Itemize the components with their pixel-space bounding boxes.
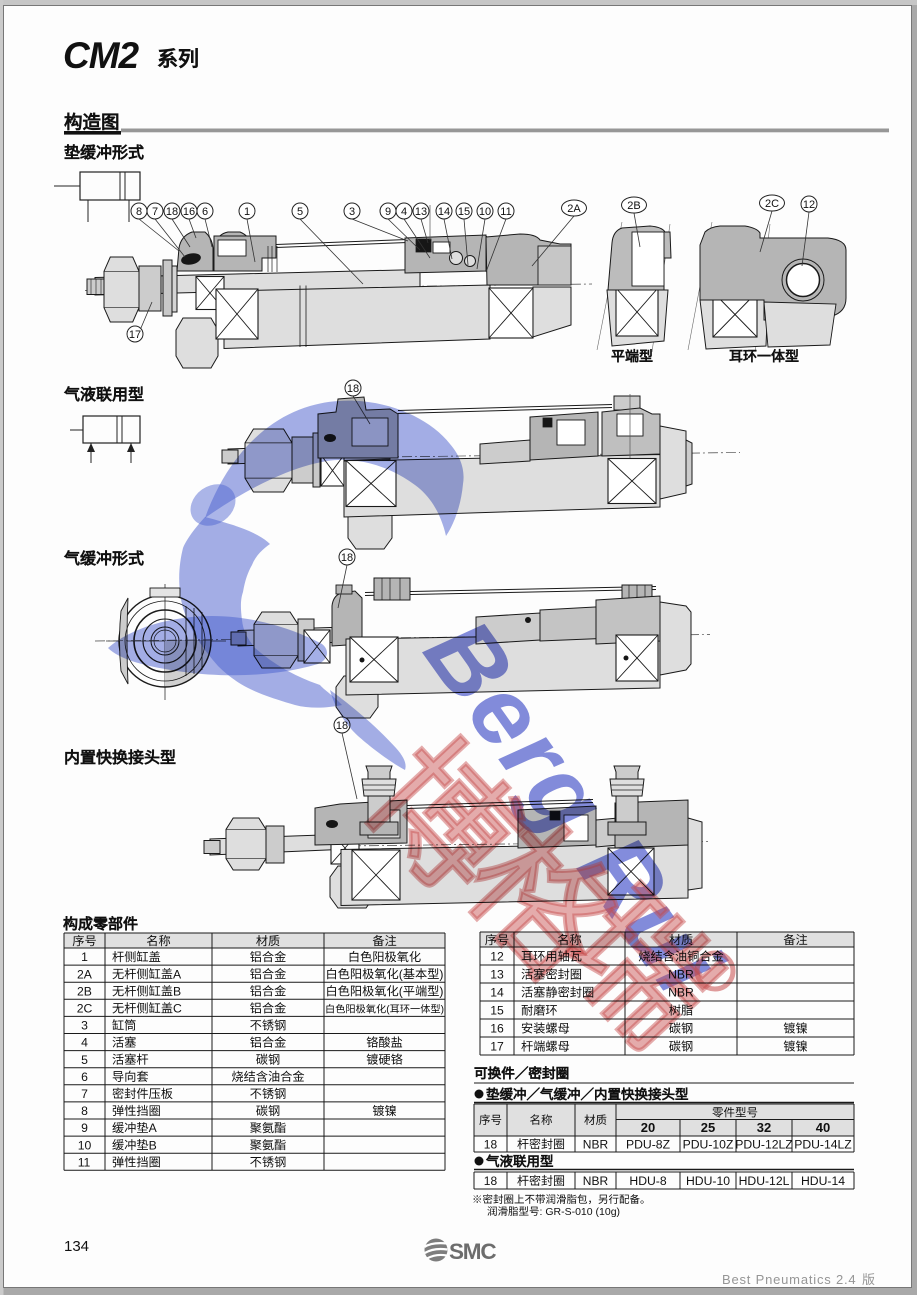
svg-text:4: 4 [401, 206, 407, 218]
svg-text:PDU-14LZ: PDU-14LZ [794, 1137, 852, 1151]
svg-text:25: 25 [701, 1120, 715, 1135]
svg-text:18: 18 [484, 1174, 498, 1188]
svg-text:PDU-10Z: PDU-10Z [683, 1137, 734, 1151]
svg-text:14: 14 [438, 206, 450, 218]
svg-text:2B: 2B [77, 984, 92, 998]
svg-text:A: A [149, 1121, 158, 1135]
svg-text:9: 9 [385, 206, 391, 218]
svg-text:13: 13 [415, 206, 427, 218]
svg-text:134: 134 [64, 1238, 89, 1255]
svg-text:14: 14 [490, 986, 504, 1000]
svg-text:7: 7 [152, 206, 158, 218]
svg-text:PDU-12LZ: PDU-12LZ [735, 1137, 793, 1151]
svg-text:): ) [439, 984, 443, 998]
svg-text:32: 32 [757, 1120, 771, 1135]
svg-text:17: 17 [490, 1040, 504, 1054]
svg-text:18: 18 [347, 383, 359, 395]
svg-text:PDU-8Z: PDU-8Z [626, 1137, 671, 1151]
svg-text:15: 15 [458, 206, 470, 218]
svg-text:(: ( [386, 1005, 390, 1016]
svg-text:2A: 2A [77, 967, 93, 981]
svg-text:2C: 2C [765, 198, 779, 210]
svg-text:12: 12 [490, 950, 504, 964]
svg-text:18: 18 [341, 552, 353, 564]
svg-text:7: 7 [81, 1087, 88, 1101]
svg-text:12: 12 [803, 199, 815, 211]
svg-text:1: 1 [244, 206, 250, 218]
svg-text:4: 4 [81, 1036, 88, 1050]
svg-text:16: 16 [490, 1022, 504, 1036]
svg-text:2C: 2C [77, 1002, 93, 1016]
svg-text:): ) [439, 967, 443, 981]
svg-text:6: 6 [202, 206, 208, 218]
svg-text:3: 3 [349, 206, 355, 218]
svg-text:Best Pneumatics 2.4: Best Pneumatics 2.4 [722, 1272, 856, 1287]
svg-text:HDU-8: HDU-8 [629, 1174, 666, 1188]
svg-text:10: 10 [78, 1138, 92, 1152]
svg-text:18: 18 [166, 206, 178, 218]
svg-text:8: 8 [136, 206, 142, 218]
svg-text:HDU-14: HDU-14 [801, 1174, 845, 1188]
svg-text:9: 9 [81, 1121, 88, 1135]
svg-text:18: 18 [484, 1137, 498, 1151]
svg-text:16: 16 [183, 206, 195, 218]
svg-text:40: 40 [816, 1120, 830, 1135]
svg-text:11: 11 [500, 206, 511, 218]
svg-text:(: ( [399, 967, 403, 981]
svg-text:): ) [441, 1005, 444, 1016]
svg-text:HDU-10: HDU-10 [686, 1174, 730, 1188]
svg-text:15: 15 [490, 1004, 504, 1018]
svg-text:6: 6 [81, 1070, 88, 1084]
svg-text:3: 3 [81, 1019, 88, 1033]
svg-text:2A: 2A [567, 203, 581, 215]
svg-text:5: 5 [297, 206, 303, 218]
svg-text:SMC: SMC [449, 1239, 496, 1264]
svg-text:2B: 2B [627, 200, 640, 212]
svg-text:13: 13 [490, 968, 504, 982]
svg-text:NBR: NBR [583, 1174, 609, 1188]
svg-text:A: A [173, 967, 182, 981]
svg-text:1: 1 [81, 950, 88, 964]
svg-text:HDU-12L: HDU-12L [739, 1174, 790, 1188]
svg-text:NBR: NBR [583, 1137, 609, 1151]
svg-text:5: 5 [81, 1053, 88, 1067]
svg-text:20: 20 [641, 1120, 655, 1135]
svg-text:CM2: CM2 [63, 35, 140, 76]
svg-text:10: 10 [479, 206, 491, 218]
svg-text:B: B [173, 984, 181, 998]
svg-text:11: 11 [78, 1155, 91, 1169]
svg-text:B: B [149, 1138, 157, 1152]
svg-text:17: 17 [129, 329, 141, 341]
svg-text:(: ( [399, 984, 403, 998]
svg-text:: GR-S-010 (10g): : GR-S-010 (10g) [540, 1206, 621, 1218]
svg-text:C: C [173, 1002, 182, 1016]
svg-text:8: 8 [81, 1104, 88, 1118]
